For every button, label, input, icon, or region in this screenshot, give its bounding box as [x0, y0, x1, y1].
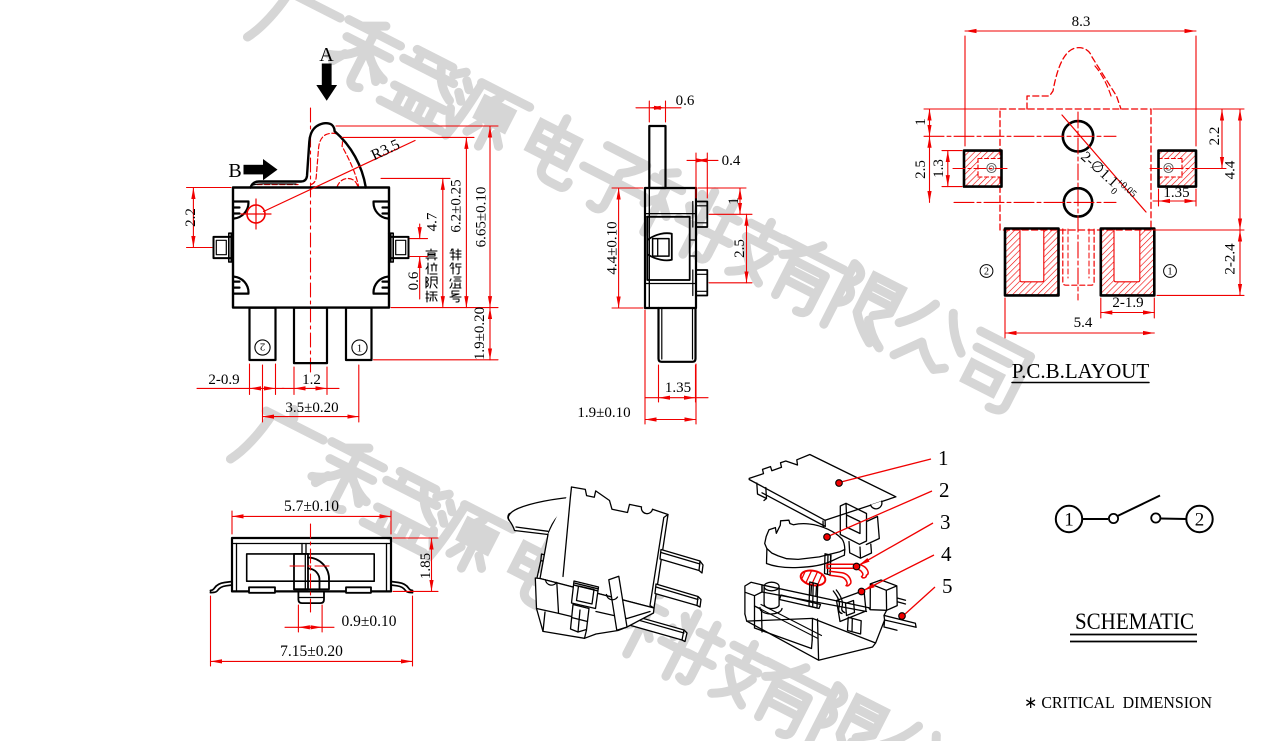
svg-text:2: 2: [939, 478, 950, 502]
svg-text:4.7: 4.7: [425, 212, 441, 231]
svg-text:4: 4: [941, 542, 952, 566]
svg-text:0.6: 0.6: [406, 271, 422, 290]
svg-text:0.9±0.10: 0.9±0.10: [341, 613, 396, 630]
svg-text:0.4: 0.4: [722, 153, 741, 169]
svg-text:1.35: 1.35: [1163, 185, 1189, 201]
svg-text:2: 2: [984, 266, 989, 277]
svg-text:4.4: 4.4: [1223, 160, 1239, 179]
svg-text:1.3: 1.3: [931, 159, 947, 178]
svg-text:4.4±0.10: 4.4±0.10: [605, 221, 621, 274]
svg-text:1: 1: [357, 342, 363, 354]
svg-text:2-0.9: 2-0.9: [208, 372, 239, 388]
svg-text:2.5: 2.5: [732, 239, 748, 258]
svg-text:2.2: 2.2: [1207, 127, 1223, 146]
svg-text:1: 1: [1168, 266, 1173, 277]
svg-text:SCHEMATIC: SCHEMATIC: [1075, 609, 1194, 635]
svg-text:A: A: [319, 44, 334, 66]
svg-text:R3.5: R3.5: [368, 136, 402, 164]
svg-text:2: 2: [1195, 510, 1205, 531]
svg-text:1.85: 1.85: [418, 553, 434, 579]
svg-text:1.9±0.20: 1.9±0.20: [472, 307, 488, 360]
svg-text:6.2±0.25: 6.2±0.25: [449, 179, 465, 232]
svg-text:2.5: 2.5: [913, 160, 929, 179]
svg-text:3.5±0.20: 3.5±0.20: [285, 400, 338, 416]
svg-text:∗ CRITICAL DIMENSION: ∗ CRITICAL DIMENSION: [1024, 693, 1212, 712]
svg-text:1.35: 1.35: [665, 380, 691, 396]
svg-text:3: 3: [940, 510, 951, 534]
svg-text:2-2.4: 2-2.4: [1223, 243, 1239, 275]
svg-text:2-1.9: 2-1.9: [1112, 295, 1143, 311]
svg-text:1: 1: [1064, 510, 1074, 531]
svg-text:1: 1: [938, 446, 949, 470]
svg-text:0.6: 0.6: [676, 93, 695, 109]
svg-text:2.2: 2.2: [183, 208, 199, 227]
svg-text:6.65±0.10: 6.65±0.10: [474, 187, 490, 248]
svg-text:5.4: 5.4: [1074, 315, 1093, 331]
svg-text:1: 1: [913, 118, 929, 126]
svg-text:8.3: 8.3: [1072, 14, 1091, 30]
svg-text:1.2: 1.2: [302, 372, 321, 388]
svg-text:P.C.B.LAYOUT: P.C.B.LAYOUT: [1012, 359, 1150, 383]
svg-text:2: 2: [260, 341, 266, 353]
svg-text:1: 1: [726, 197, 742, 205]
svg-text:5.7±0.10: 5.7±0.10: [284, 498, 339, 515]
svg-text:1.9±0.10: 1.9±0.10: [577, 405, 630, 421]
svg-text:7.15±0.20: 7.15±0.20: [280, 643, 343, 660]
svg-text:5: 5: [942, 574, 953, 598]
svg-text:B: B: [228, 160, 241, 182]
